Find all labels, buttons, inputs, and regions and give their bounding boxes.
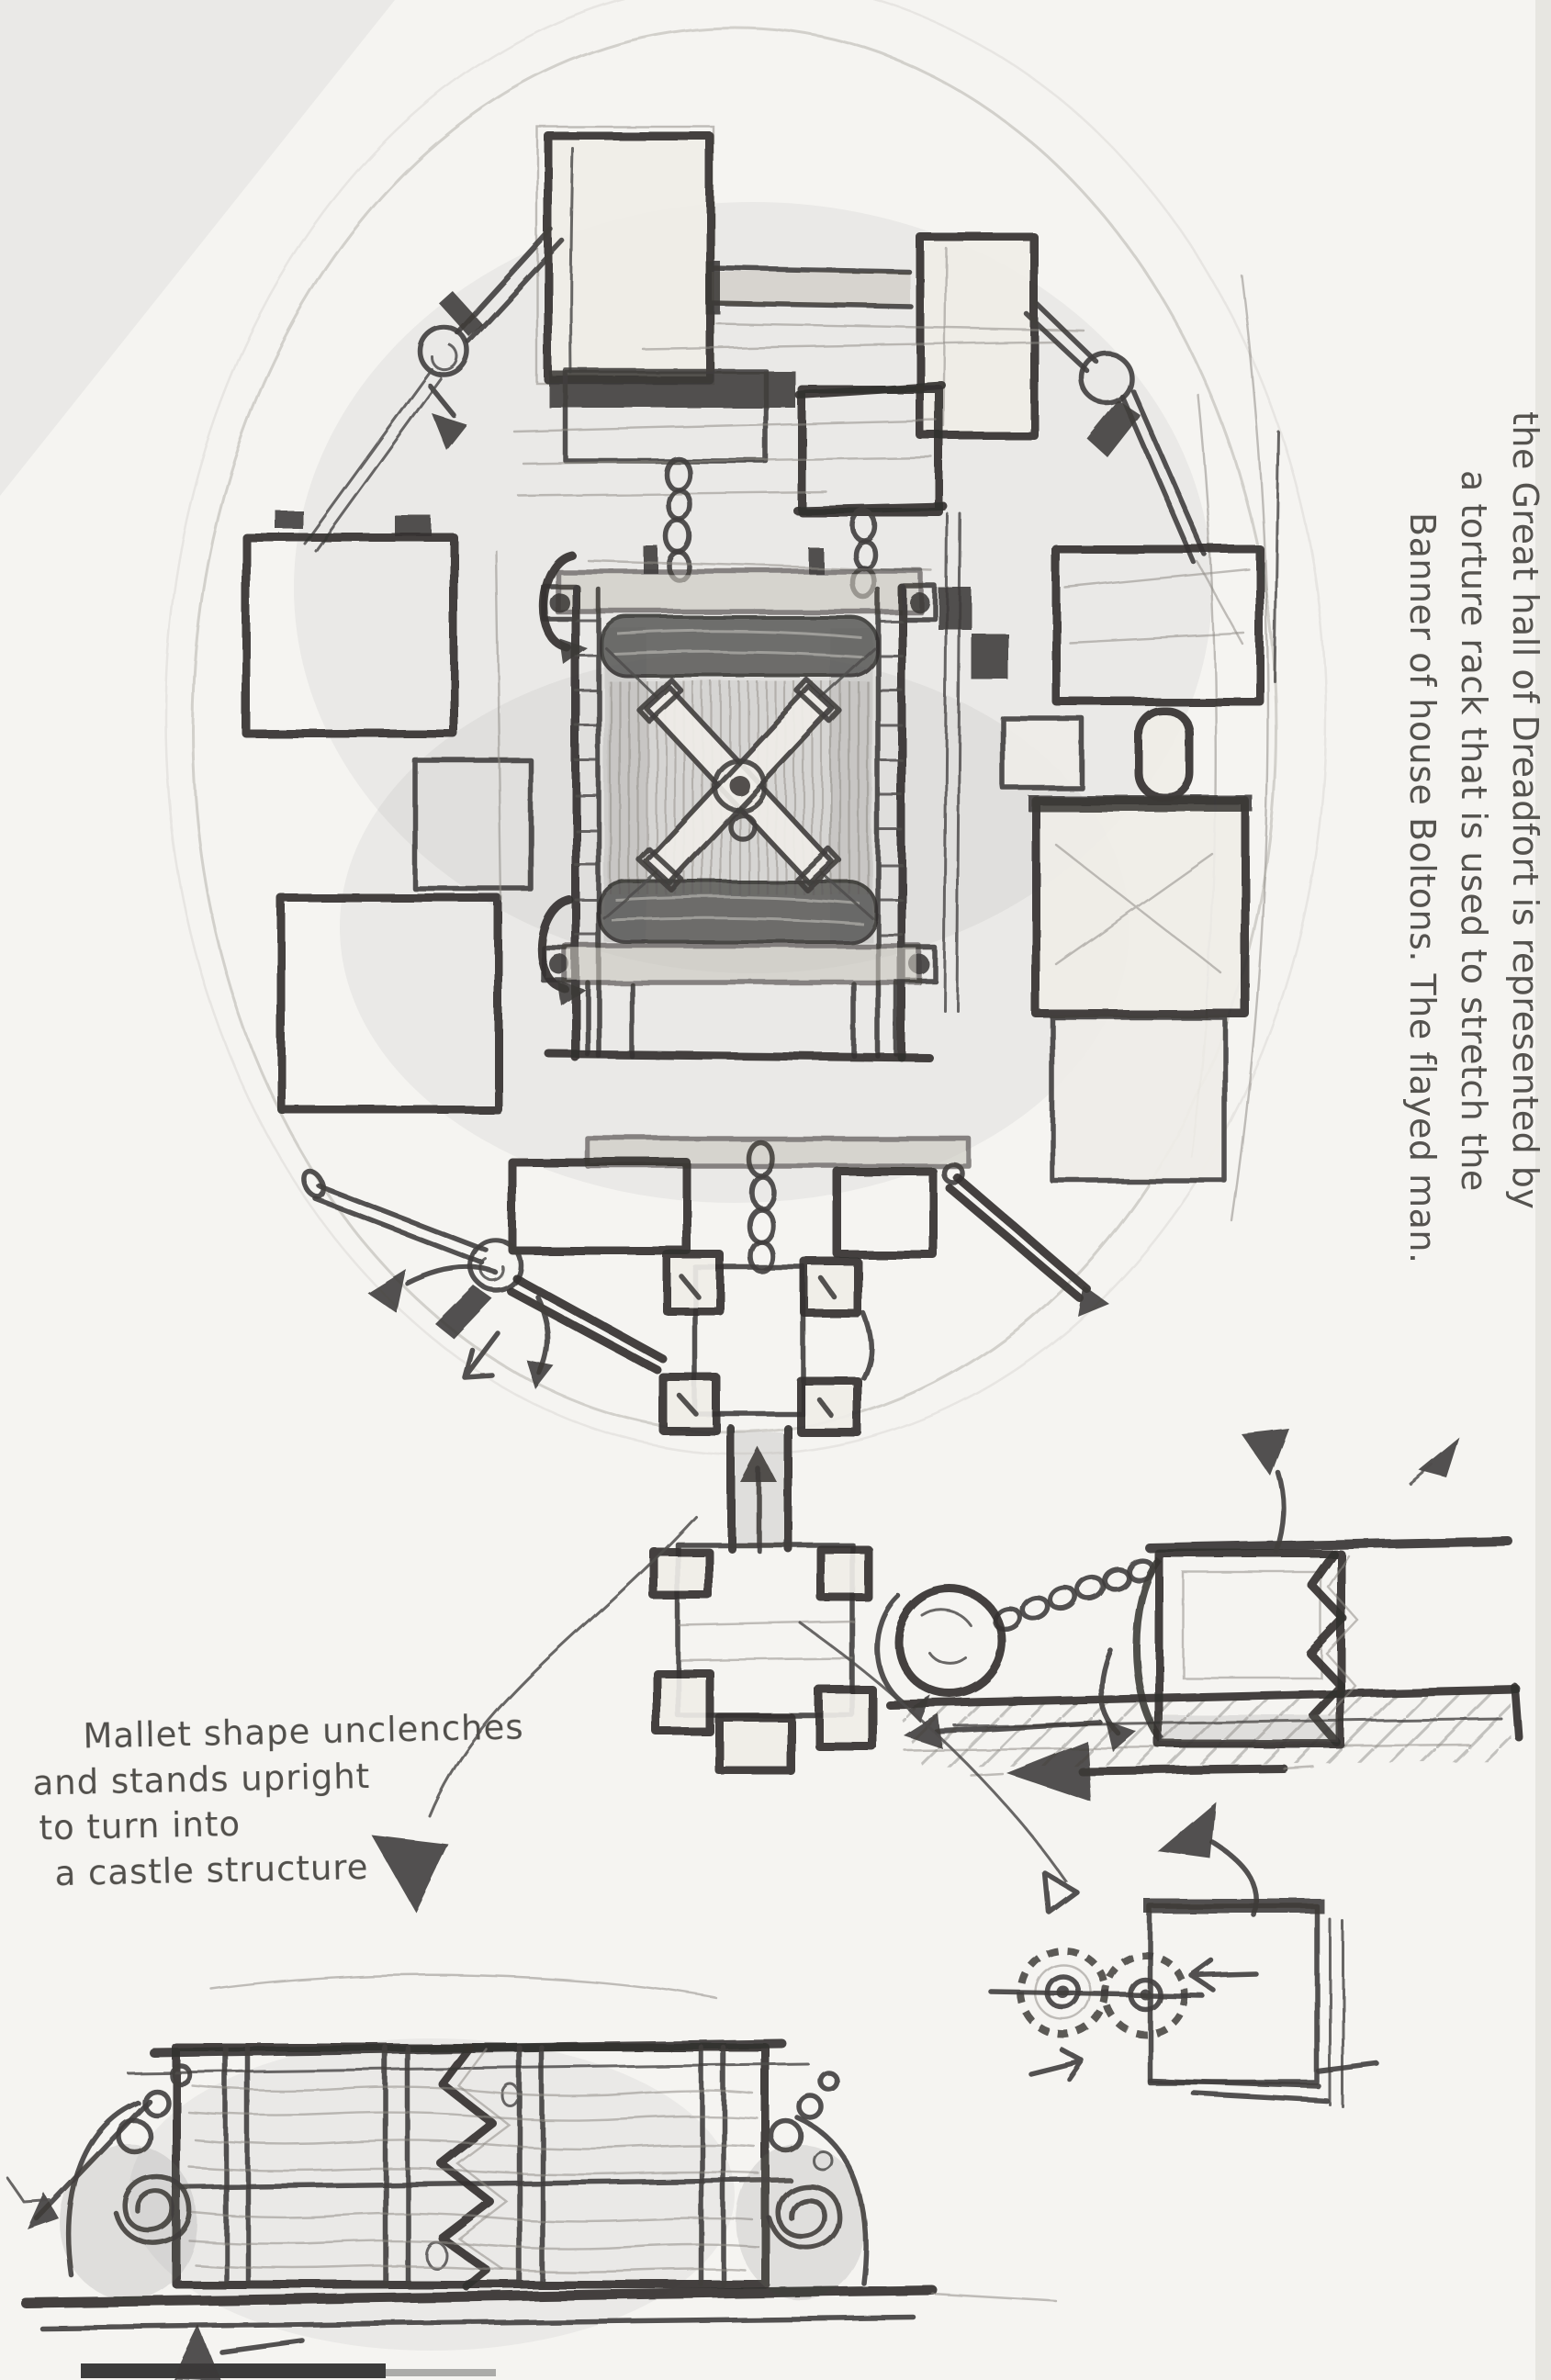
top-roller [601,617,877,676]
castle-cluster-upper [663,1254,858,1432]
scroll-right [736,2072,866,2300]
ground-line [26,2290,932,2303]
handwritten-note-mallet: Mallet shape unclenches and stands uprig… [31,1704,531,1897]
corner-tower [820,1549,868,1597]
solid-arrowhead [367,1269,406,1313]
joint-circle [471,1241,521,1290]
handwritten-note-dreadfort: the Great hall of Dreadfort is represent… [1396,411,1551,1440]
lower-box [1052,1017,1225,1181]
large-box [1036,801,1245,1014]
rack-base-line [549,1054,929,1058]
slot-shape [1139,711,1190,797]
rack-bottom-bar [565,946,919,982]
handle-shaft [731,1429,788,1550]
corner-tower [801,1381,858,1432]
block-face [1183,1572,1321,1678]
box-right-edges [1330,1919,1343,2106]
rack-top-bar [557,571,921,612]
note-line: the Great hall of Dreadfort is represent… [1500,411,1551,1440]
thick-beam [511,1278,663,1370]
small-left-arrow [1192,1961,1256,1991]
corner-tower [667,1254,720,1311]
corner-tower [657,1673,710,1732]
right-strut [944,1164,1109,1317]
chain-links [993,1557,1155,1633]
bottom-roller [599,881,876,942]
small-box [1003,718,1082,788]
mallet-handle [712,272,910,305]
block-top-edge [1150,1541,1508,1548]
pencil-sketch [0,0,1551,2380]
note-line: Banner of house Boltons. The flayed man. [1396,411,1447,1440]
castle-cluster-lower [654,1544,872,1770]
base-box [719,1717,791,1770]
up-left-arrowhead [1157,1802,1216,1858]
big-arrow-shaft [1082,1768,1284,1771]
corner-tower [819,1690,872,1746]
scanned-sketch-page: Mallet shape unclenches and stands uprig… [0,0,1551,2380]
note-line: a torture rack that is used to stretch t… [1448,411,1500,1440]
corner-tower [804,1262,858,1313]
open-triangle-arrowhead [1045,1873,1076,1912]
scan-edge-bar [81,2363,386,2378]
scan-edge-bar [386,2369,496,2376]
upswing-arrowhead [1242,1429,1289,1476]
small-right-arrow [1030,2049,1082,2079]
ball-weight [898,1589,1003,1694]
corner-shading [0,0,395,496]
ground-end-mark [1515,1688,1519,1737]
mallet-band [549,371,795,408]
club [435,1285,492,1339]
ball-and-chain-sketch [877,1429,1519,1768]
small-solid-triangle [173,2325,220,2380]
corner-tower [654,1552,709,1596]
handle-collar [705,261,720,314]
open-arrow [465,1333,498,1377]
